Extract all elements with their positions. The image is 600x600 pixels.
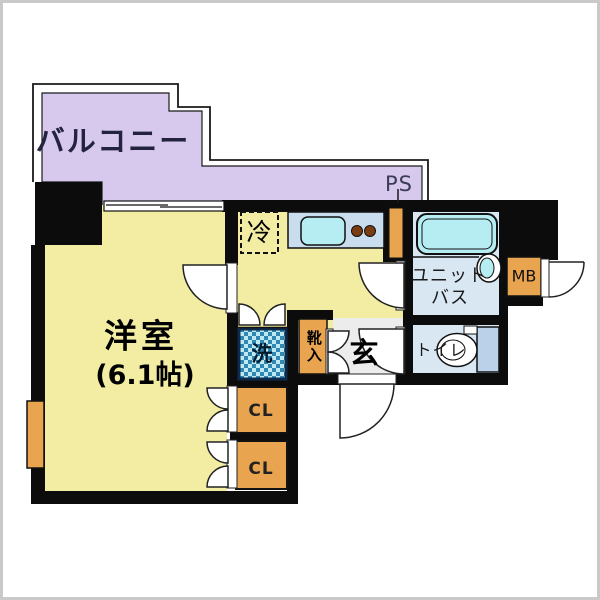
wall-segment bbox=[403, 315, 508, 325]
meter-box-label: MB bbox=[512, 269, 537, 286]
wall-segment bbox=[225, 212, 238, 265]
wall-segment bbox=[298, 373, 340, 385]
unit-bath-label-2: バス bbox=[431, 290, 469, 309]
unit-bath-label-1: ユニット bbox=[411, 268, 487, 287]
wall-segment bbox=[31, 491, 298, 504]
wall-segment bbox=[35, 182, 102, 245]
floor-plan-drawing bbox=[0, 0, 600, 600]
toilet-label: トイレ bbox=[415, 343, 466, 360]
washer-label: 洗 bbox=[252, 343, 273, 365]
wall-segment bbox=[499, 212, 508, 385]
bathtub-icon bbox=[417, 214, 497, 254]
closet-lower-label: CL bbox=[248, 461, 273, 479]
left-wall-box bbox=[27, 401, 44, 468]
wall-segment bbox=[287, 310, 298, 503]
pipe-space-label: PS bbox=[385, 173, 413, 195]
pipe-strip bbox=[389, 208, 403, 258]
entrance-label: 玄 bbox=[349, 338, 378, 368]
door-jamb bbox=[541, 259, 549, 297]
entrance-door-opening bbox=[338, 374, 396, 384]
wall-segment bbox=[502, 200, 558, 260]
kitchen-sink-icon bbox=[301, 217, 345, 245]
refrigerator-label: 冷 bbox=[246, 220, 271, 246]
balcony-label: バルコニー bbox=[36, 126, 190, 156]
room-size-label: (6.1帖) bbox=[95, 362, 195, 390]
shoe-cabinet-label: 靴入 bbox=[305, 330, 321, 364]
floor-plan: バルコニー PS 冷 洋室 (6.1帖) ユニット バス MB トイレ 玄 靴入… bbox=[0, 0, 600, 600]
sliding-window-icon bbox=[104, 201, 224, 211]
room-name-label: 洋室 bbox=[104, 320, 178, 355]
closet-upper-label: CL bbox=[248, 403, 273, 421]
